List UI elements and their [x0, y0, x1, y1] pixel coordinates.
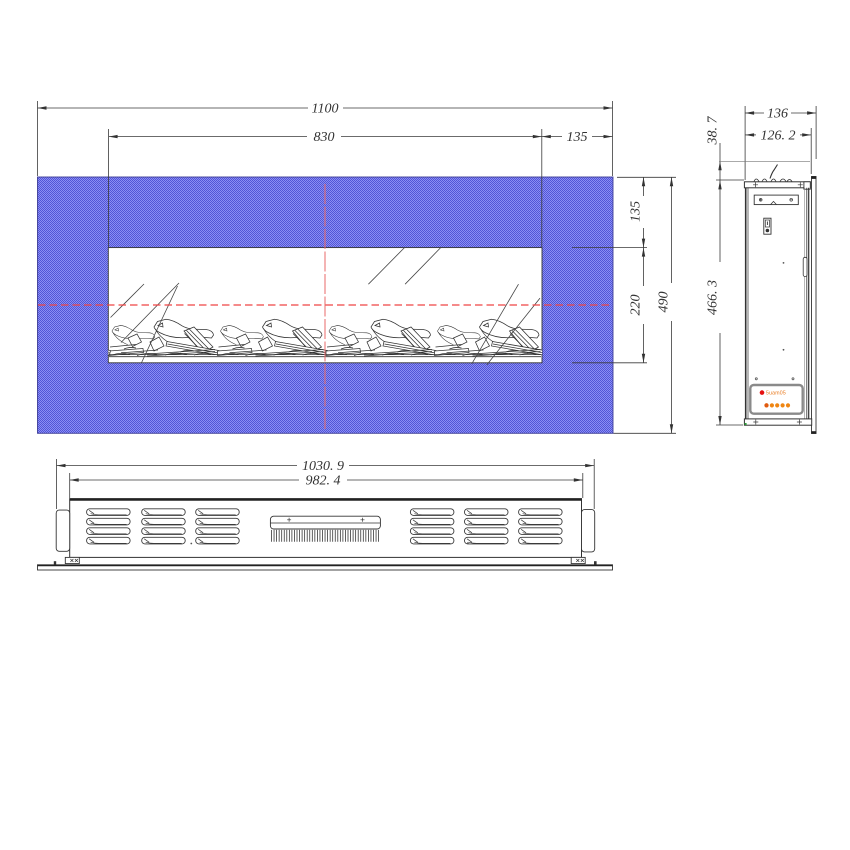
svg-text:135: 135: [629, 201, 644, 222]
svg-text:1030. 9: 1030. 9: [302, 459, 344, 474]
svg-text:466. 3: 466. 3: [706, 280, 721, 315]
svg-text:220: 220: [629, 295, 644, 316]
svg-text:135: 135: [567, 130, 588, 145]
svg-text:38. 7: 38. 7: [706, 116, 721, 146]
svg-text:830: 830: [314, 130, 335, 145]
svg-text:126. 2: 126. 2: [761, 128, 796, 143]
svg-text:5uam05: 5uam05: [766, 391, 786, 397]
svg-text:1100: 1100: [312, 102, 339, 117]
svg-text:490: 490: [657, 292, 672, 313]
svg-text:982. 4: 982. 4: [306, 474, 341, 489]
svg-text:136: 136: [767, 107, 788, 122]
